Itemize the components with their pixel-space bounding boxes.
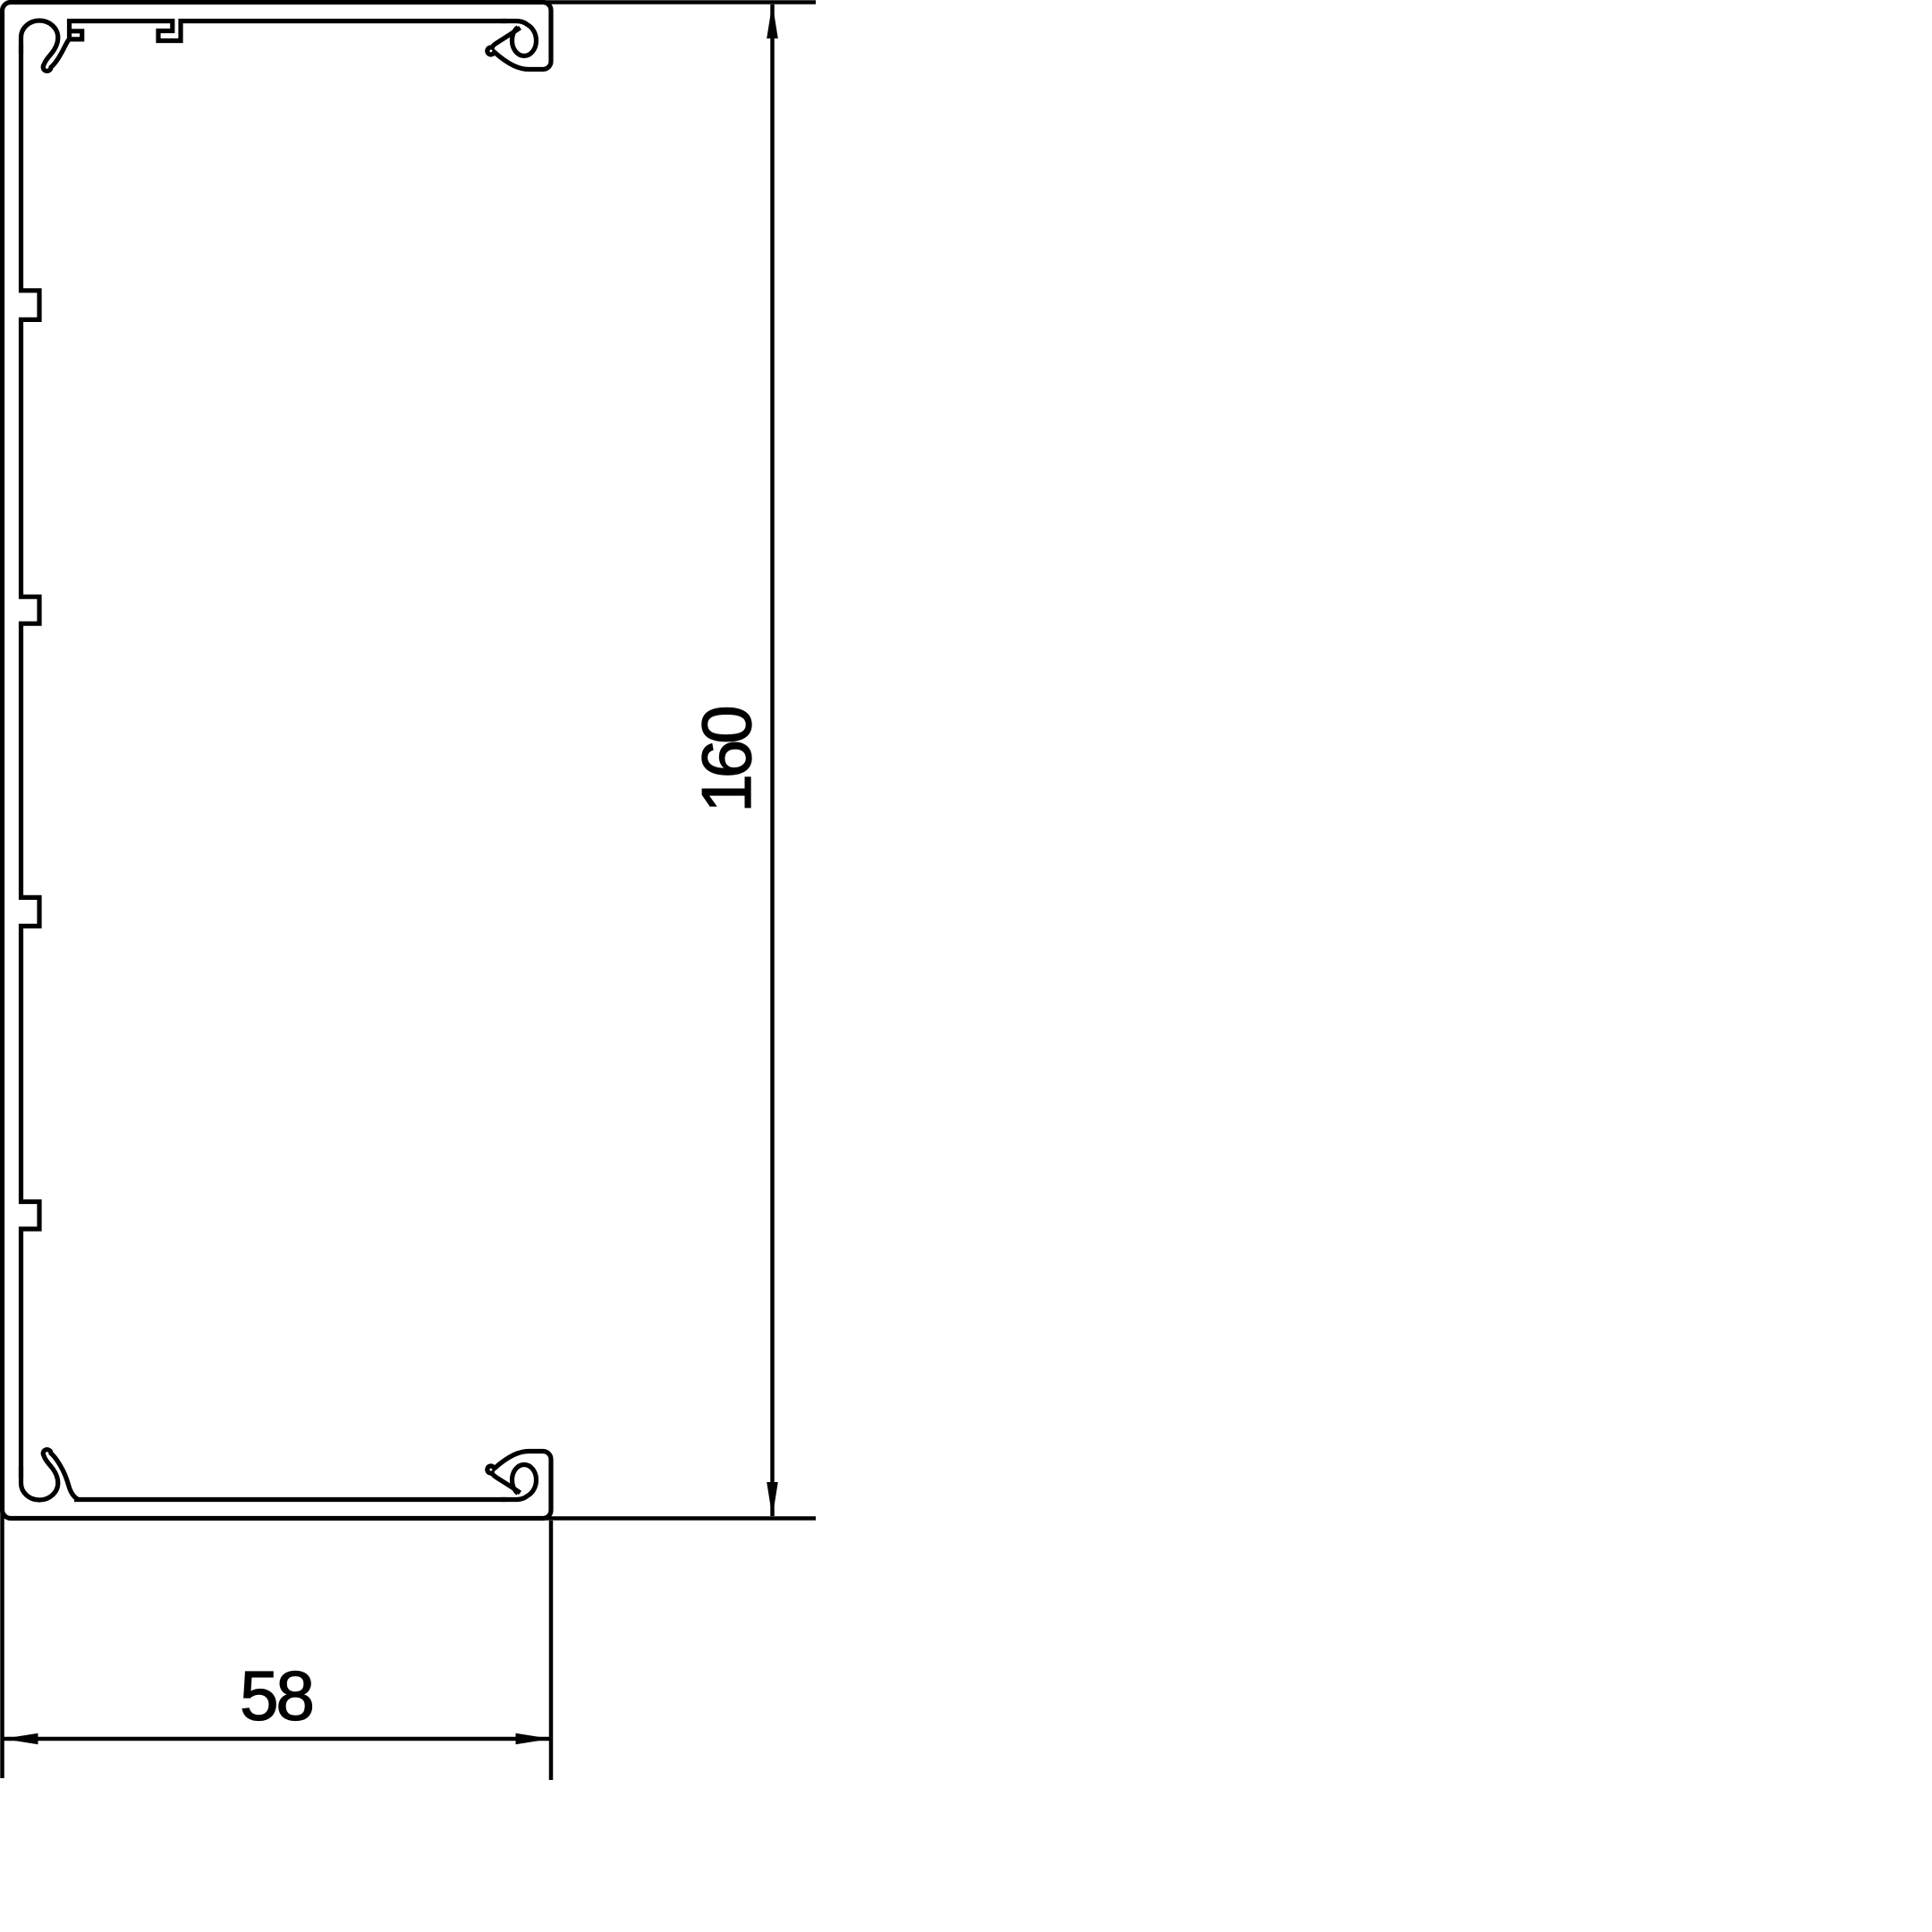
- svg-text:58: 58: [240, 1657, 312, 1735]
- svg-text:160: 160: [687, 708, 766, 813]
